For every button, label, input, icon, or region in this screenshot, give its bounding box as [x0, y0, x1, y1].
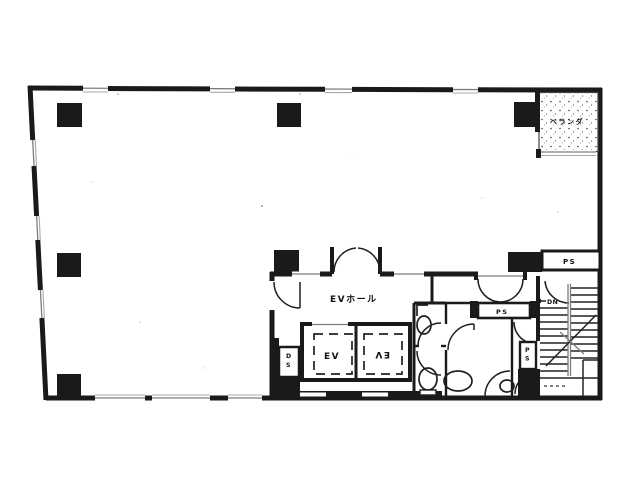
ev-hall-left-door — [274, 282, 300, 308]
stair-wall — [536, 276, 540, 341]
door-leaf-arc — [334, 248, 356, 272]
balcony-window-jamb — [536, 149, 541, 158]
staircase: PS DN — [518, 276, 598, 398]
balcony-wall — [535, 92, 540, 132]
column — [57, 253, 81, 277]
double-door-south — [474, 272, 527, 302]
wall-window-gap — [362, 393, 388, 397]
wall-segment — [34, 166, 37, 216]
ev-hall-label: EVホール — [330, 294, 378, 305]
elevator-left-label: EV — [324, 352, 340, 362]
stair-treads-left — [540, 308, 568, 371]
ev-hall: EVホール — [274, 247, 527, 308]
column — [57, 103, 82, 127]
balcony-label: ベランダ — [550, 117, 584, 126]
door-leaf-arc — [358, 248, 380, 272]
wall-segment — [42, 318, 46, 400]
scan-noise — [91, 93, 559, 369]
ps-upper-right-label: PS — [563, 258, 576, 266]
basin-fixture — [444, 371, 472, 391]
balcony-area: ベランダ — [535, 92, 598, 158]
door-leaf-arc — [274, 282, 300, 308]
ps-stairwell-label: PS — [525, 347, 530, 363]
duct-shaft: DS — [272, 338, 300, 398]
wall-mass — [508, 252, 542, 272]
column — [514, 102, 538, 127]
window-sill — [35, 140, 36, 166]
door-jamb — [523, 272, 527, 280]
door-arc — [448, 324, 474, 350]
wall-mass — [270, 391, 442, 398]
wall-window-gap — [300, 393, 326, 397]
ps-center-label: PS — [496, 308, 508, 316]
wall-segment — [38, 240, 41, 290]
corner-basin-fixture — [417, 305, 428, 316]
door-jamb — [474, 272, 478, 280]
door-leaf-arc — [478, 279, 500, 302]
column — [57, 374, 81, 398]
stair-treads-right — [570, 288, 598, 358]
door-arc — [418, 323, 441, 346]
double-door-north — [330, 247, 382, 274]
stairs-down-label: DN — [547, 299, 558, 306]
floor-plan-canvas: ベランダ PS EVホール — [0, 0, 640, 480]
wall-segment — [30, 86, 33, 140]
outer-walls — [28, 86, 602, 400]
window-sill — [43, 290, 45, 318]
column — [277, 103, 301, 127]
balcony-window-gap — [540, 150, 596, 158]
door-arc — [514, 322, 536, 344]
wall-mass — [277, 378, 300, 392]
elevator-right-label: EV — [374, 349, 390, 359]
outer-window-lines — [30, 88, 600, 398]
window-sill — [39, 216, 40, 240]
door-leaf-arc — [500, 279, 523, 302]
floor-plan-page: ベランダ PS EVホール — [0, 0, 640, 480]
wall-mass — [518, 369, 540, 398]
pipe-shaft-upper-right: PS — [542, 251, 600, 270]
toilet-tank — [420, 390, 436, 395]
column — [274, 250, 299, 274]
